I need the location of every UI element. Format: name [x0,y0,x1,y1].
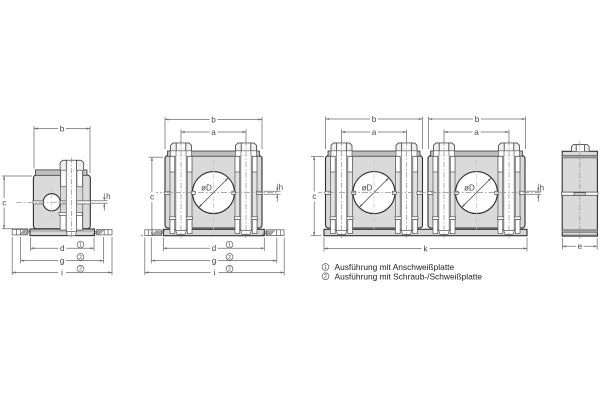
svg-text:2: 2 [324,274,327,280]
svg-text:2: 2 [79,267,82,273]
svg-text:h: h [279,183,283,192]
svg-text:2: 2 [228,267,231,273]
svg-text:øD: øD [201,184,212,193]
svg-text:a: a [211,128,216,137]
svg-text:c: c [312,192,316,201]
svg-text:2: 2 [228,255,231,261]
svg-text:b: b [60,125,65,134]
svg-text:h: h [106,192,110,201]
svg-text:b: b [211,115,216,124]
svg-text:a: a [474,128,479,137]
svg-text:i: i [214,268,216,277]
svg-text:c: c [2,198,6,207]
svg-text:d: d [212,244,217,253]
svg-text:Ausführung mit Schraub-/Schwei: Ausführung mit Schraub-/Schweißplatte [335,271,483,281]
svg-text:e: e [578,242,583,251]
svg-text:øD: øD [464,184,475,193]
svg-text:1: 1 [79,243,82,249]
svg-text:g: g [212,257,217,266]
svg-text:1: 1 [228,243,231,249]
svg-text:g: g [60,257,65,266]
svg-text:2: 2 [79,255,82,261]
svg-text:c: c [150,192,154,201]
svg-text:a: a [372,128,377,137]
svg-text:b: b [372,115,377,124]
svg-text:i: i [61,268,63,277]
svg-text:h: h [540,183,544,192]
svg-text:d: d [60,244,65,253]
svg-text:b: b [475,115,480,124]
svg-text:1: 1 [324,265,327,271]
svg-text:øD: øD [362,184,373,193]
